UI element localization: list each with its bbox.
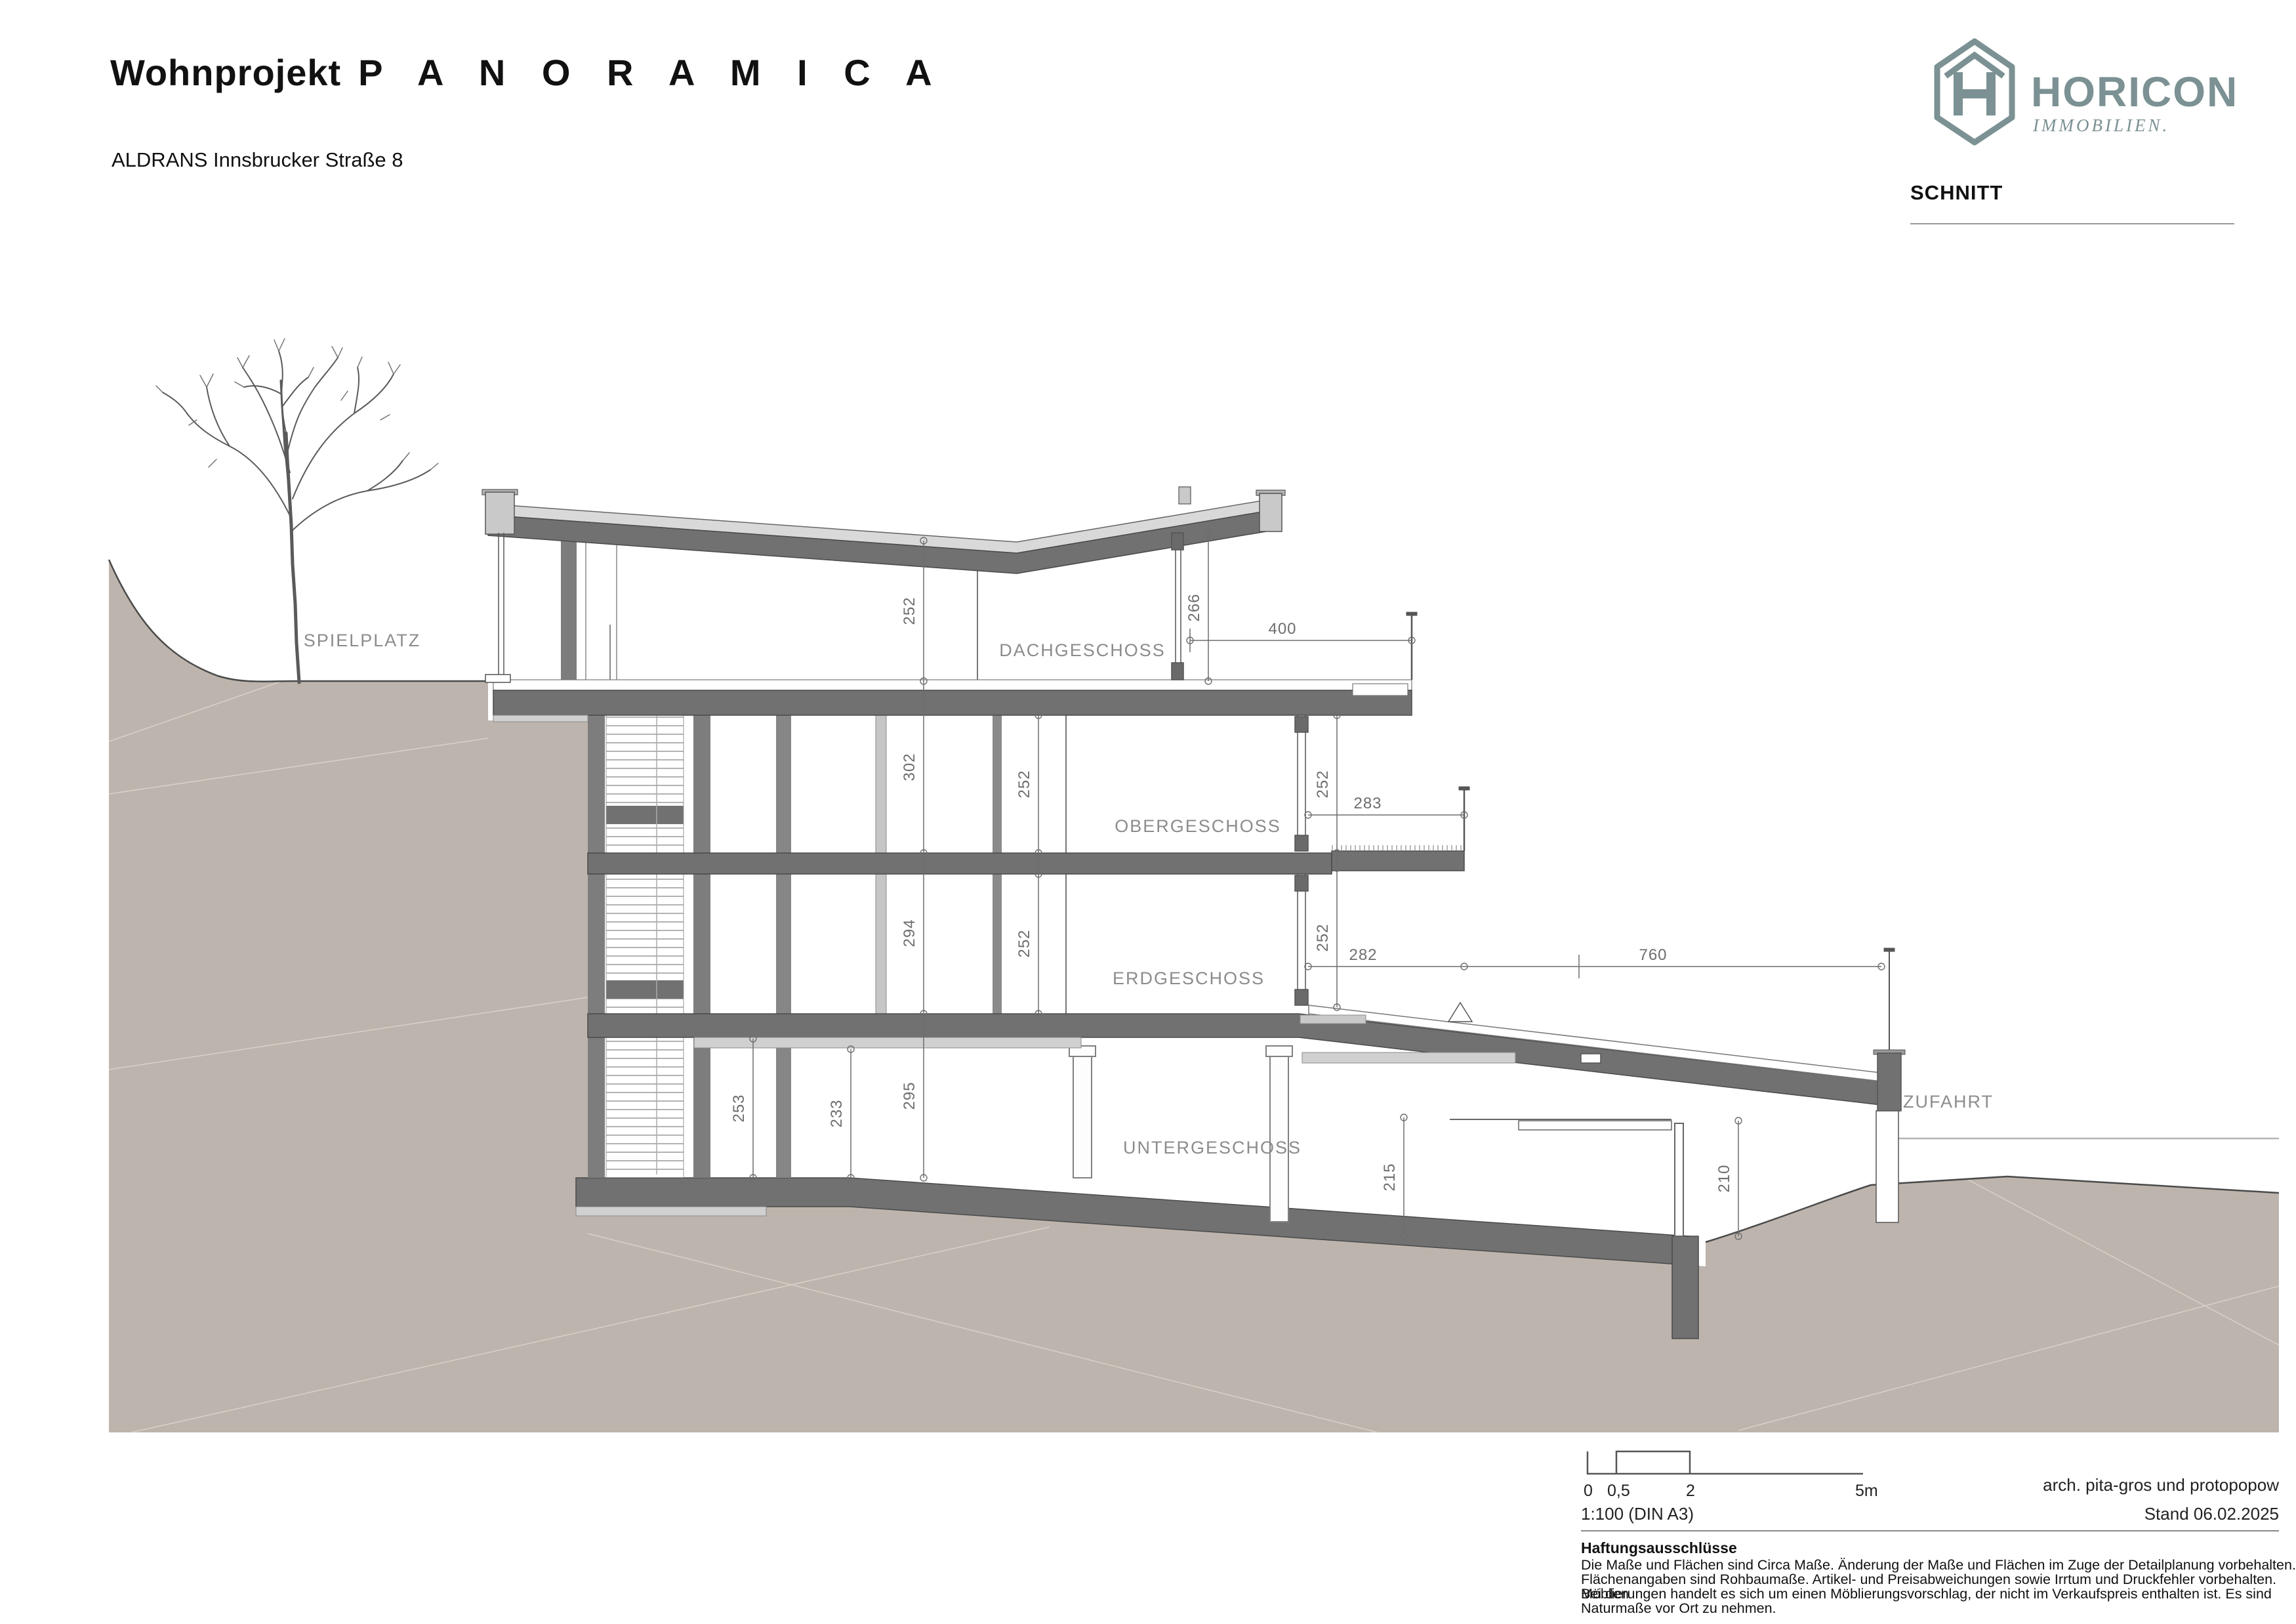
terrace-gutter [1353, 684, 1408, 696]
dim-og-balcony: 283 [1353, 795, 1382, 812]
disclaimer-line: Möblierungen handelt es sich um einen Mö… [1581, 1587, 2272, 1601]
dim-eg-right: 252 [1314, 923, 1332, 951]
parapet-cap-left [485, 675, 510, 682]
dim-garage-clear: 215 [1381, 1163, 1399, 1191]
disclaimer-line: Naturmaße vor Ort zu nehmen. [1581, 1601, 1776, 1615]
roof [482, 487, 1285, 573]
drain-box [1581, 1054, 1601, 1063]
dim-eg-terrace-2: 760 [1639, 946, 1667, 964]
scale-tick-05: 0,5 [1607, 1482, 1630, 1500]
dim-og-right: 252 [1314, 770, 1332, 798]
footer-rule [1581, 1530, 2279, 1531]
scale-note: 1:100 (DIN A3) [1581, 1504, 1694, 1524]
og-balcony-slab [1332, 851, 1464, 871]
railings [1406, 612, 1905, 1222]
plan-date: Stand 06.02.2025 [1902, 1504, 2279, 1524]
dim-og-eg: 294 [901, 919, 918, 947]
label-untergeschoss: UNTERGESCHOSS [1123, 1138, 1302, 1157]
label-obergeschoss: OBERGESCHOSS [1115, 816, 1281, 836]
dim-dg-height: 252 [901, 596, 918, 625]
roof-fascia-right [1260, 493, 1282, 531]
label-erdgeschoss: ERDGESCHOSS [1113, 968, 1265, 988]
dim-eg-left: 252 [1015, 929, 1033, 957]
label-zufahrt: ZUFAHRT [1903, 1092, 1994, 1112]
label-dachgeschoss: DACHGESCHOSS [999, 640, 1166, 660]
dim-dg-og: 302 [901, 753, 918, 781]
roof-vent [1179, 487, 1191, 504]
scale-bar: 0 0,5 2 5m [1581, 1444, 1883, 1506]
garage-door [1450, 1119, 1683, 1236]
section-drawing: 252 266 400 302 252 252 283 294 252 252 … [0, 0, 2296, 1624]
door-swing-symbol [1448, 1003, 1472, 1022]
roof-fascia-left [485, 492, 514, 534]
architect-credit: arch. pita-gros und protopopow [1902, 1475, 2279, 1495]
dim-eg-terrace-1: 282 [1349, 946, 1377, 964]
stair-landing [606, 980, 684, 999]
label-spielplatz: SPIELPLATZ [304, 631, 421, 650]
scale-tick-5m: 5m [1855, 1482, 1878, 1500]
stair-landing [606, 806, 684, 824]
dim-garage-door: 210 [1715, 1164, 1733, 1192]
garage-door-leaf [1675, 1123, 1683, 1236]
eg-parapet [1877, 1053, 1901, 1111]
dim-ug-1: 253 [730, 1094, 748, 1122]
disclaimer-line: Die Maße und Flächen sind Circa Maße. Än… [1581, 1558, 2296, 1572]
dim-ug-2: 233 [828, 1099, 846, 1127]
scale-tick-2: 2 [1686, 1482, 1695, 1500]
dim-og-left: 252 [1015, 770, 1033, 798]
dim-eg-ug: 295 [901, 1081, 918, 1110]
garage-door-panel-open [1519, 1121, 1671, 1130]
scale-tick-0: 0 [1584, 1482, 1593, 1500]
footing [1672, 1236, 1698, 1339]
disclaimer-title: Haftungsausschlüsse [1581, 1539, 1737, 1557]
balcony-decking [1332, 845, 1464, 851]
dim-dg-terrace-width: 400 [1268, 620, 1296, 638]
ug-outer-wall-right [1876, 1111, 1898, 1222]
dimension-markers [750, 531, 1885, 1239]
dim-dg-terrace-height: 266 [1185, 593, 1203, 621]
dimension-lines [753, 534, 1881, 1236]
